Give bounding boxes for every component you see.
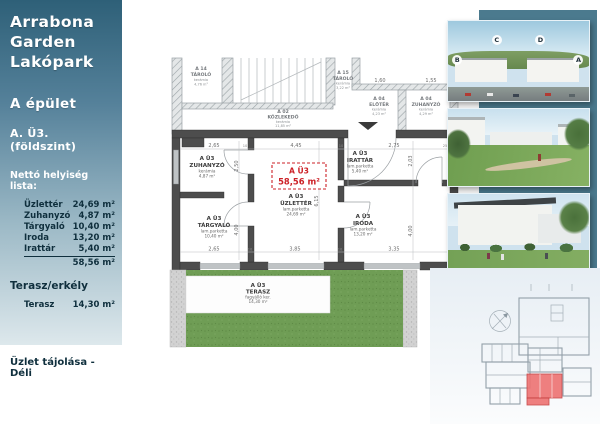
dim-bottom-small-1: 10 [248,248,253,252]
room-area: 13,20 m² [73,233,115,244]
upper-plan-walls [172,58,458,134]
room-row: Tárgyaló 10,40 m² [24,222,115,233]
building-left [455,60,507,82]
label-terasz-id: A Ü3 [251,282,266,289]
room-label-a15-area: 3,22 m² [336,86,350,90]
label-uzletter-area: 24,69 m² [286,212,305,217]
room-row: Zuhanyzó 4,87 m² [24,211,115,222]
room-label-kozlekedo-id: A 02 [277,109,289,115]
site-plan-background [430,268,600,424]
building-right [527,60,579,82]
room-label-eloter-id: A 04 [373,96,385,102]
dim-bottom-3: 3,35 [388,247,399,253]
label-irattar-area: 5,40 m² [352,169,369,174]
room-row: Iroda 13,20 m² [24,233,115,244]
bushes [448,243,589,252]
dim-mid: 6,15 [314,195,320,206]
room-label-zuhany04-id: A 04 [420,96,432,102]
room-row: Üzlettér 24,69 m² [24,200,115,211]
room-area: 4,87 m² [78,211,115,222]
room-area: 5,40 m² [78,244,115,255]
room-label-zuhany04-material: kerámia [419,108,433,112]
room-label-a14-area: 4,76 m² [194,83,208,87]
room-row: Irattár 5,40 m² [24,244,115,255]
orientation-note: Üzlet tájolása - Déli [10,357,115,379]
terrace-list: Terasz 14,30 m² [10,300,115,311]
title-line-1: Arrabona [10,12,115,32]
room-area: 24,69 m² [73,200,115,211]
room-name: Iroda [24,233,49,244]
room-label-a14-name: TÁROLÓ [191,71,212,78]
total-area-row: 58,56 m² [24,256,115,269]
label-zuhanyzo-area: 4,87 m² [199,174,216,179]
label-targyalo-area: 10,40 m² [204,234,223,239]
floor-plan: A 14 TÁROLÓ kerámia 4,76 m² A 15 TÁROLÓ … [150,38,470,424]
room-label-a14-material: kerámia [194,78,208,82]
dim-bottom-2: 3,85 [289,247,300,253]
room-label-eloter-material: kerámia [372,108,386,112]
room-label-kozlekedo-area: 11,85 m² [275,124,292,128]
room-name: Irattár [24,244,55,255]
entrance-arrow-icon [358,122,378,130]
terrace-row: Terasz 14,30 m² [24,300,115,311]
label-terasz-area: 14,30 m² [248,299,267,304]
dim-top-small-1: 10 [243,144,248,148]
unit-id: A Ü3 [289,167,309,176]
room-label-eloter-area: 4,23 m² [372,112,386,116]
room-name: Tárgyaló [24,222,65,233]
room-label-a14-id: A 14 [195,66,207,72]
label-uzletter-id: A Ü3 [289,193,304,200]
room-name: Üzlettér [24,200,63,211]
room-area: 10,40 m² [73,222,115,233]
dim-bottom-1: 2,65 [208,247,219,253]
terrace-area: 14,30 m² [73,300,115,311]
dim-top-small-2: 10 [339,144,344,148]
dimension-chains: 2,65 10 4,45 10 2,75 25 2,65 10 3,85 10 … [180,141,450,260]
dim-upper-2: 1,55 [425,78,436,84]
label-zuhanyzo-id: A Ü3 [200,155,215,162]
building-letter-b: B [452,55,462,65]
brochure-page: Arrabona Garden Lakópark A épület A. Ü3.… [0,0,600,424]
room-label-a15-id: A 15 [337,70,349,76]
room-list: Üzlettér 24,69 m² Zuhanyzó 4,87 m² Tárgy… [10,200,115,269]
terrace-garden: A Ü3 TERASZ fagyálló ker. 14,30 m² [170,270,417,347]
dim-upper-1: 1,60 [374,78,385,84]
dim-bottom-small-2: 10 [338,248,343,252]
room-label-zuhany04-area: 4,29 m² [419,112,433,116]
people [487,253,490,259]
dim-left-1: 2,50 [234,160,240,171]
unit-area: 58,56 m² [278,177,320,187]
photo-building-closeup [447,193,590,271]
building-name: A épület [10,96,115,112]
tree [447,123,476,165]
project-title: Arrabona Garden Lakópark [10,12,115,72]
unit-area-label: A Ü3 58,56 m² [272,163,326,189]
sidebar: Arrabona Garden Lakópark A épület A. Ü3.… [0,0,122,345]
label-targyalo-id: A Ü3 [207,215,222,222]
person [538,154,541,161]
terrace-heading: Terasz/erkély [10,280,115,292]
title-line-3: Lakópark [10,52,115,72]
tree [552,194,590,241]
label-iroda-id: A Ü3 [356,213,371,220]
room-name: Zuhanyzó [24,211,70,222]
unit-name: A. Ü3. (földszint) [10,127,115,153]
dim-right-1: 2,03 [408,155,414,166]
photo-aerial-view: B C D A [447,20,590,102]
room-label-a15-material: kerámia [336,82,350,86]
dim-top-2: 4,45 [290,143,301,149]
label-iroda-area: 13,20 m² [353,232,372,237]
photo-courtyard [447,108,590,187]
title-line-2: Garden [10,32,115,52]
dim-top-1: 2,65 [208,143,219,149]
terrace-name: Terasz [24,300,54,311]
total-area: 58,56 m² [73,257,115,269]
building-middle [490,132,552,145]
room-list-heading: Nettó helyiség lista: [10,170,115,192]
dim-top-3: 2,75 [388,143,399,149]
staircase [241,58,321,103]
tree [558,111,590,157]
dim-right-2: 4,00 [408,225,414,236]
parked-cars [465,93,471,96]
site-key-plan [430,268,600,424]
label-irattar-id: A Ü3 [353,150,368,157]
dim-left-2: 4,00 [234,224,240,235]
